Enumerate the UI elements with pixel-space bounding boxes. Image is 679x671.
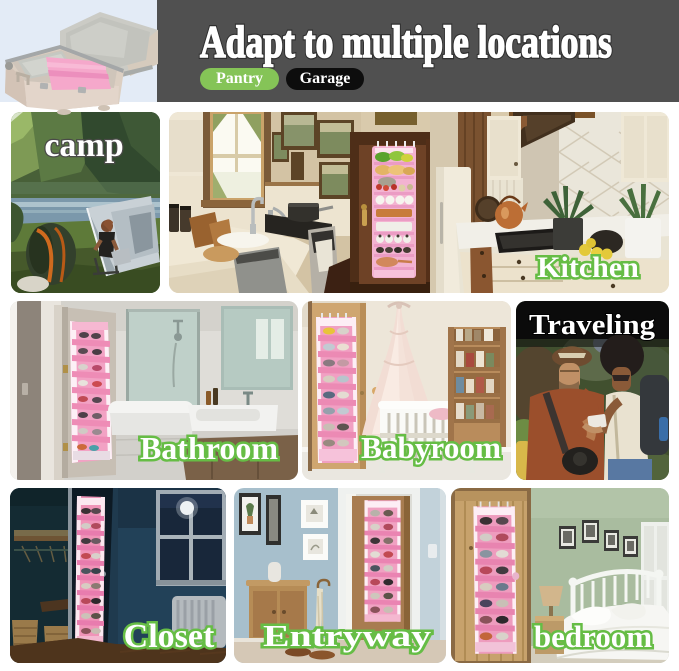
svg-text:bedroom: bedroom [534, 619, 652, 654]
svg-text:Babyroom: Babyroom [361, 430, 501, 465]
svg-text:Bathroom: Bathroom [140, 430, 278, 466]
svg-text:Kitchen: Kitchen [537, 251, 639, 284]
svg-text:Adapt to multiple locations: Adapt to multiple locations [200, 17, 612, 67]
svg-text:Entryway: Entryway [263, 618, 432, 653]
svg-text:camp: camp [44, 127, 123, 164]
svg-text:Closet: Closet [124, 618, 215, 655]
svg-text:Traveling: Traveling [529, 309, 656, 341]
